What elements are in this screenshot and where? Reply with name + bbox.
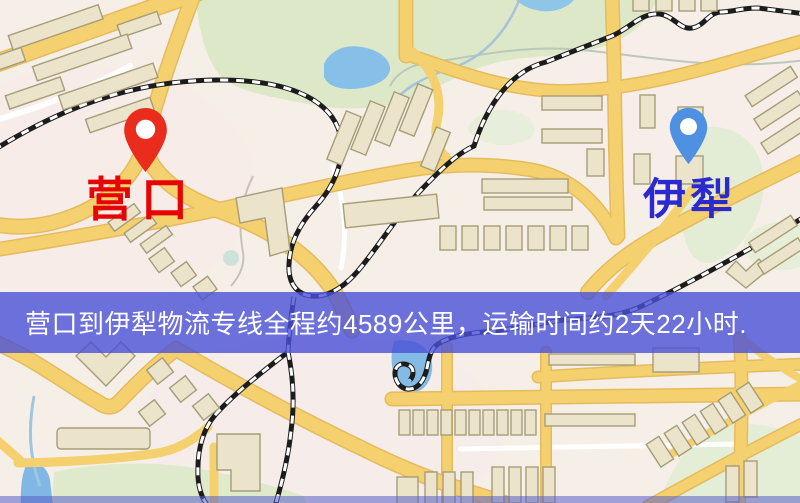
destination-pin-hole [680, 118, 697, 135]
origin-pin-body [124, 108, 167, 172]
origin-label: 营口 [86, 176, 196, 223]
destination-label: 伊犁 [643, 179, 737, 222]
map-background [0, 0, 800, 503]
route-info-text: 营口到伊犁物流专线全程约4589公里，运输时间约2天22小时. [25, 304, 747, 341]
origin-pin-icon[interactable] [122, 107, 169, 172]
destination-pin-icon[interactable] [668, 103, 709, 168]
bottom-edge-strip [0, 496, 800, 503]
destination-pin-body [670, 108, 707, 164]
route-info-banner: 营口到伊犁物流专线全程约4589公里，运输时间约2天22小时. [0, 292, 800, 353]
origin-pin-hole [136, 120, 155, 139]
map-canvas[interactable]: 营口 伊犁 营口到伊犁物流专线全程约4589公里，运输时间约2天22小时. [0, 0, 800, 503]
